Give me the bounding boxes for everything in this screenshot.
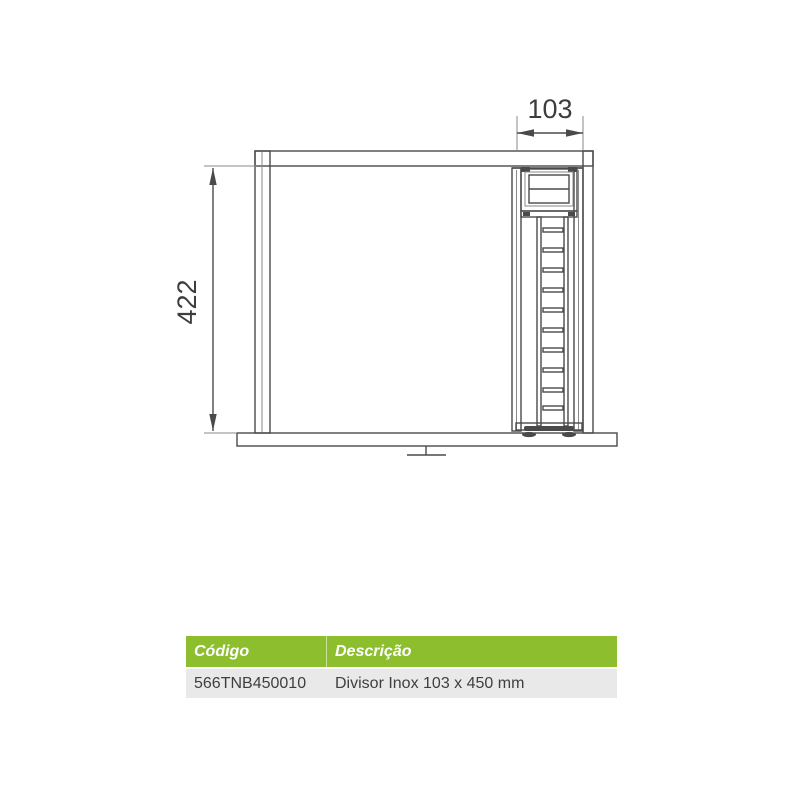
divider-rung (543, 406, 563, 410)
arrow-up-icon (209, 168, 216, 185)
table-cell-codigo: 566TNB450010 (186, 669, 327, 698)
divider-rung (543, 288, 563, 292)
drawer-front-panel (237, 433, 617, 446)
arrow-down-icon (209, 414, 216, 431)
drawer-handle (407, 446, 446, 455)
table-header-codigo: Código (186, 636, 327, 667)
width-dimension: 103 (517, 94, 583, 150)
table-row: 566TNB450010 Divisor Inox 103 x 450 mm (186, 669, 617, 698)
divider-ladder (537, 217, 568, 426)
divider-unit (512, 167, 583, 437)
product-spec-table: Código Descrição 566TNB450010 Divisor In… (186, 636, 617, 698)
divider-rung (543, 388, 563, 392)
divider-rung (543, 228, 563, 232)
width-dimension-label: 103 (527, 94, 572, 124)
technical-drawing: 103 422 (0, 0, 800, 600)
divider-rung (543, 268, 563, 272)
table-header-row: Código Descrição (186, 636, 617, 667)
drawer-right-wall (583, 151, 593, 433)
divider-right-rail (574, 168, 583, 431)
divider-foot (516, 423, 582, 437)
divider-rung (543, 248, 563, 252)
arrow-right-icon (566, 129, 583, 136)
divider-clamp (512, 167, 583, 217)
divider-rung (543, 348, 563, 352)
table-header-descricao: Descrição (327, 636, 617, 667)
height-dimension: 422 (172, 166, 256, 433)
drawer-back-panel (255, 151, 593, 166)
divider-rung (543, 328, 563, 332)
height-dimension-label: 422 (172, 279, 202, 324)
arrow-left-icon (517, 129, 534, 136)
divider-left-rail (512, 168, 521, 431)
divider-rung (543, 368, 563, 372)
table-cell-descricao: Divisor Inox 103 x 450 mm (327, 669, 617, 698)
divider-rung (543, 308, 563, 312)
